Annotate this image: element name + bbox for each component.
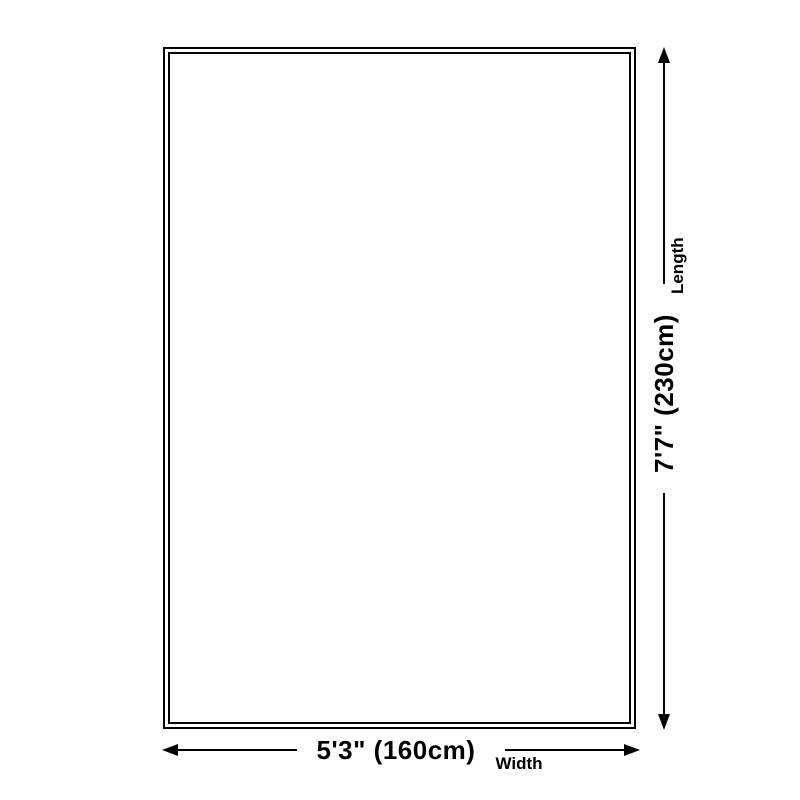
width-dimension-arrow: 5'3" (160cm) Width [162,727,640,773]
length-line-segment-2: Length [663,63,666,284]
arrow-left-icon [162,744,178,756]
width-label: Width [495,755,542,774]
length-label: Length [669,237,688,294]
width-line-segment-2: Width [505,749,624,752]
rug-outline [163,47,636,729]
width-value: 5'3" (160cm) [317,737,476,763]
width-line-segment-1 [178,749,297,752]
rug-dimension-diagram: 5'3" (160cm) Width 7'7" (230cm) Length [0,0,800,800]
length-line-segment-1 [663,493,666,714]
arrow-up-icon [658,47,670,63]
rug-inner-border [168,52,631,724]
length-value: 7'7" (230cm) [651,314,677,473]
arrow-down-icon [658,714,670,730]
length-dimension-arrow: 7'7" (230cm) Length [641,47,687,730]
arrow-right-icon [624,744,640,756]
